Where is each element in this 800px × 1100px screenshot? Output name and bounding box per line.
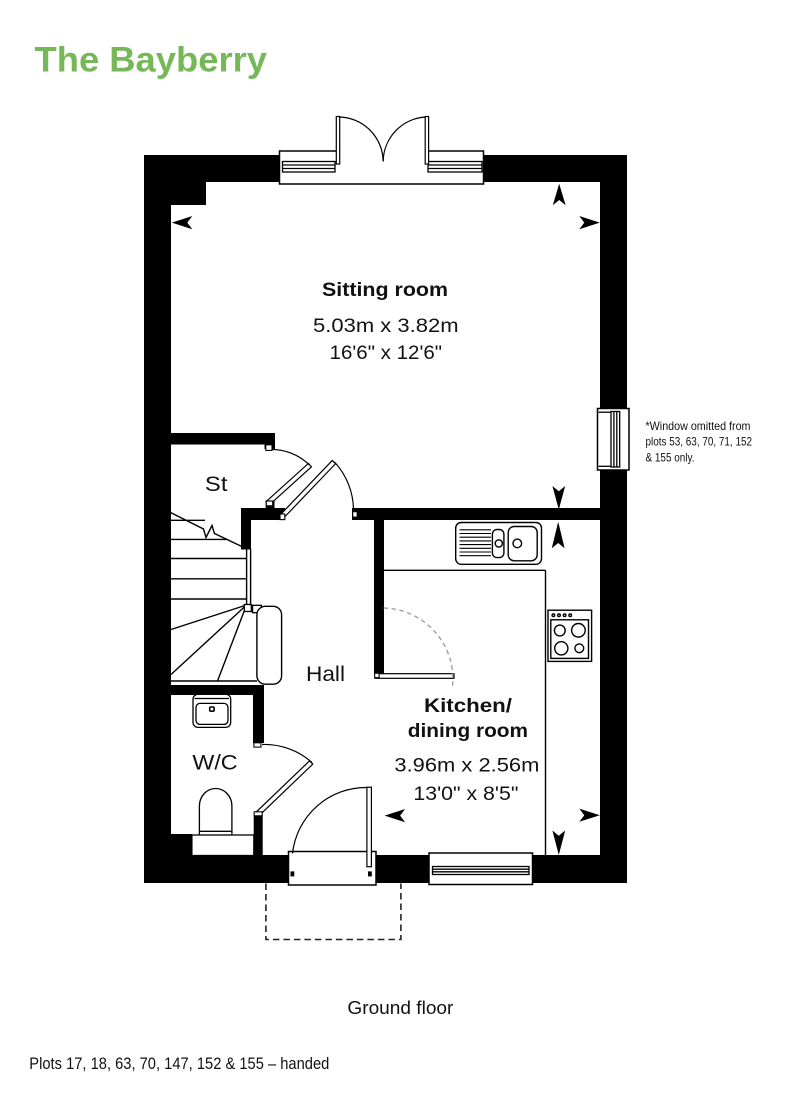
svg-text:5.03m x 3.82m: 5.03m x 3.82m [313,316,459,337]
svg-text:& 155 only.: & 155 only. [646,451,695,465]
svg-text:Plots 17, 18, 63, 70, 147, 152: Plots 17, 18, 63, 70, 147, 152 & 155 – h… [29,1054,329,1073]
svg-text:W/C: W/C [192,752,237,775]
svg-text:*Window omitted from: *Window omitted from [646,419,751,433]
svg-text:Kitchen/: Kitchen/ [424,696,513,717]
svg-text:plots 53, 63, 70, 71, 152: plots 53, 63, 70, 71, 152 [646,435,753,449]
svg-text:3.96m x 2.56m: 3.96m x 2.56m [394,756,539,777]
svg-text:Hall: Hall [306,663,345,686]
svg-text:16'6" x 12'6": 16'6" x 12'6" [330,343,443,364]
svg-text:Ground floor: Ground floor [347,998,453,1018]
svg-text:The Bayberry: The Bayberry [35,40,268,80]
svg-text:Sitting room: Sitting room [322,280,448,301]
svg-text:dining room: dining room [408,721,528,742]
svg-text:St: St [205,473,228,496]
svg-text:13'0" x 8'5": 13'0" x 8'5" [413,784,518,805]
